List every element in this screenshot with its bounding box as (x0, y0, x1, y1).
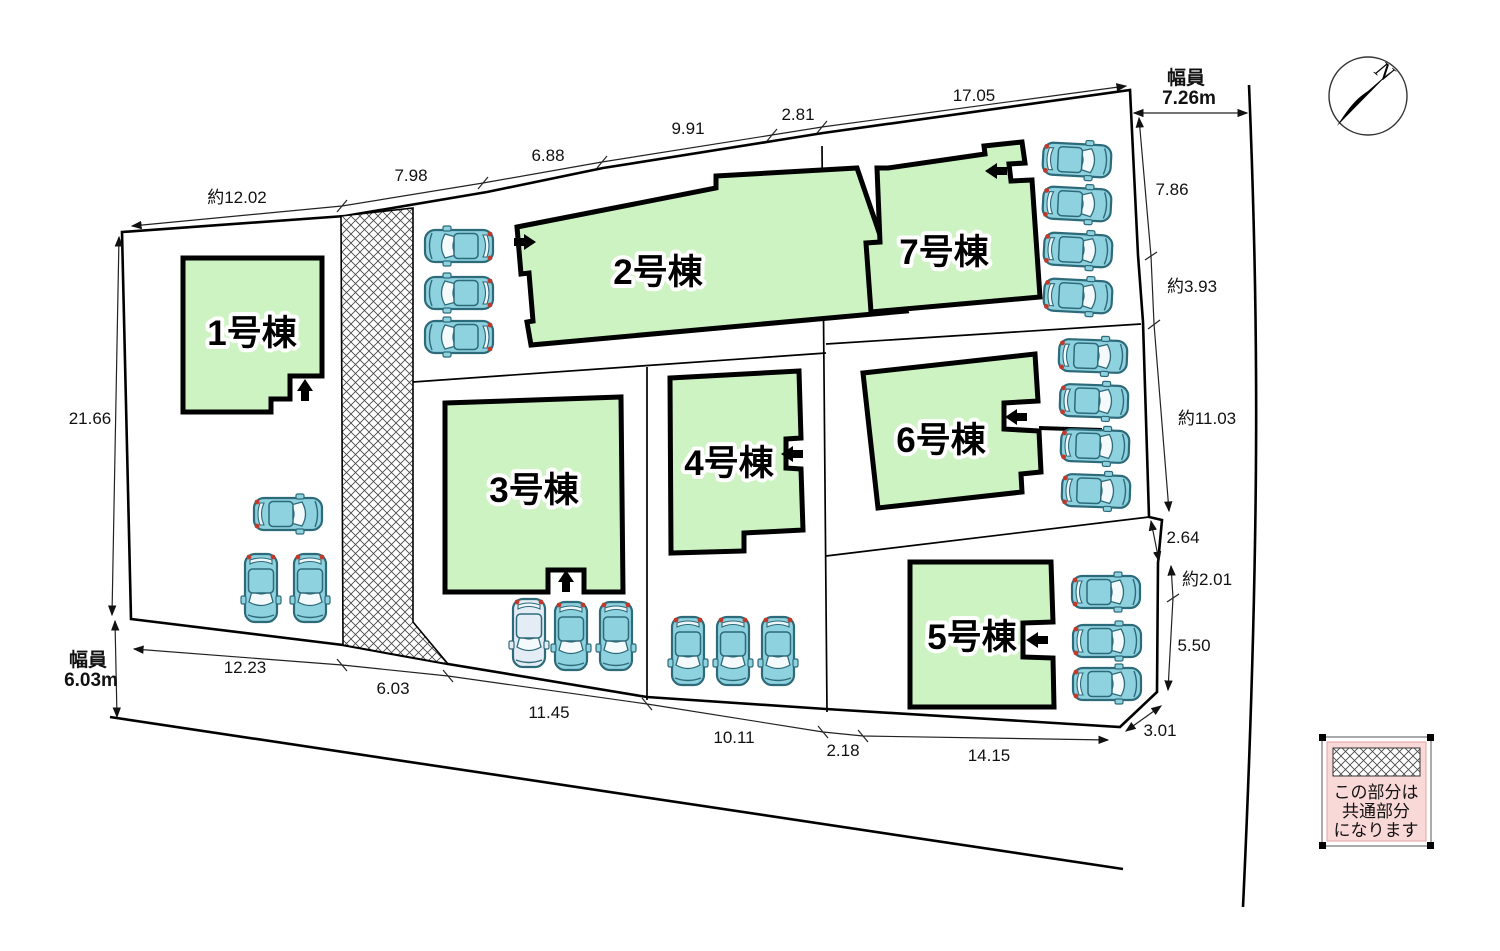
legend-box: この部分は 共通部分 になります (1319, 734, 1434, 849)
east-road-edge (1243, 85, 1256, 907)
road-width-south-label: 幅員 (69, 648, 107, 671)
car-icon (1073, 664, 1141, 704)
car-icon (1072, 572, 1140, 612)
road-width-north-value: 7.26m (1162, 88, 1216, 109)
car-icon (1060, 425, 1129, 467)
site-plan-page: 1号棟 2号棟 3号棟 4号棟 5号棟 6号棟 7号棟 (0, 0, 1500, 951)
building-4-label: 4号棟 (684, 444, 774, 483)
dim-right-1: 約3.93 (1167, 277, 1217, 296)
entrance-arrow-icon (558, 570, 574, 592)
site-plan-drawing: 1号棟 2号棟 3号棟 4号棟 5号棟 6号棟 7号棟 (0, 0, 1500, 951)
lot-divider-6-5 (826, 517, 1149, 556)
car-icon (668, 617, 708, 685)
road-width-south-value: 6.03m (64, 670, 118, 691)
road-width-north-label: 幅員 (1167, 66, 1205, 89)
building-2: 2号棟 (514, 168, 906, 345)
car-icon (1059, 380, 1128, 422)
car-icon (758, 617, 798, 685)
dim-bottom-4: 2.18 (826, 741, 859, 760)
dim-bottom-5: 14.15 (968, 746, 1011, 765)
car-icon (1061, 470, 1130, 512)
dim-top-4: 2.81 (781, 105, 814, 124)
car-icon (1073, 621, 1141, 661)
dim-left-0: 21.66 (69, 409, 112, 428)
building-1: 1号棟 (183, 258, 322, 412)
legend-line-2: 共通部分 (1342, 802, 1410, 821)
car-icon (241, 554, 281, 622)
building-5-label: 5号棟 (927, 618, 1017, 657)
car-icon (1043, 228, 1113, 272)
car-icon (1042, 138, 1112, 182)
car-icon (1043, 274, 1113, 318)
car-icon (551, 602, 591, 670)
car-icon (425, 226, 493, 266)
dim-right-3: 2.64 (1166, 528, 1199, 547)
dim-bottom-1: 6.03 (376, 679, 409, 698)
car-icon (1058, 335, 1127, 377)
dim-right-4: 約2.01 (1182, 570, 1232, 589)
dim-top-0: 約12.02 (207, 188, 267, 207)
entrance-arrow-icon (1005, 409, 1027, 425)
building-5: 5号棟 (910, 562, 1054, 707)
building-3: 3号棟 (445, 397, 623, 592)
dim-right-2: 約11.03 (1178, 409, 1236, 428)
building-6-label: 6号棟 (896, 421, 986, 460)
car-icon (290, 554, 330, 622)
dim-right-6: 3.01 (1143, 721, 1176, 740)
car-icon (425, 273, 493, 313)
car-icon (509, 599, 549, 667)
dim-top-1: 7.98 (394, 166, 427, 185)
car-icon (596, 602, 636, 670)
building-1-label: 1号棟 (207, 314, 297, 353)
legend-line-1: この部分は (1334, 783, 1419, 802)
dim-right-0: 7.86 (1155, 180, 1188, 199)
car-icon (425, 317, 493, 357)
dim-bottom-2: 11.45 (528, 703, 569, 722)
legend-hatch-sample (1333, 748, 1420, 776)
entrance-arrow-icon (297, 379, 313, 401)
dim-bottom-3: 10.11 (713, 728, 754, 747)
building-3-label: 3号棟 (489, 471, 579, 510)
dim-bottom-0: 12.23 (224, 658, 267, 677)
compass: N (1329, 56, 1407, 135)
car-icon (713, 617, 753, 685)
entrance-arrow-icon (1026, 632, 1048, 648)
car-icon (1042, 182, 1112, 226)
building-2-label: 2号棟 (613, 253, 703, 292)
dim-top-5: 17.05 (953, 86, 996, 105)
car-icon (254, 494, 322, 534)
south-road-edge (110, 717, 1123, 869)
building-7-label: 7号棟 (899, 233, 989, 272)
building-4: 4号棟 (670, 371, 803, 553)
dim-right-5: 5.50 (1177, 636, 1210, 655)
dim-top-3: 9.91 (671, 119, 704, 138)
dim-top-2: 6.88 (531, 146, 564, 165)
legend-line-3: になります (1334, 821, 1419, 840)
building-7: 7号棟 (866, 142, 1040, 312)
